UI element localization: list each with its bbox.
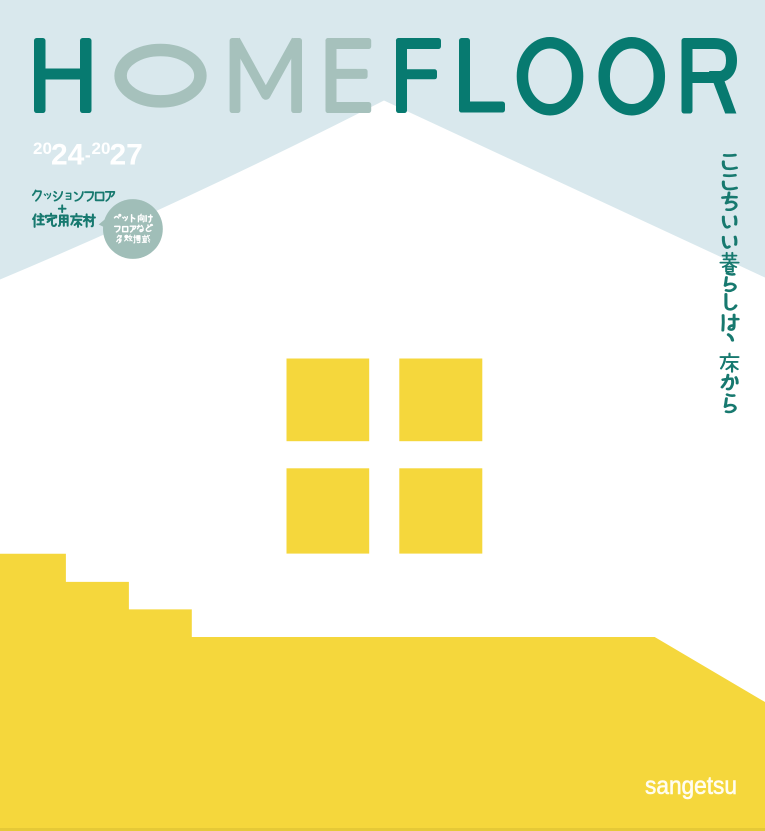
svg-text:24: 24 xyxy=(51,139,85,172)
svg-text:27: 27 xyxy=(110,139,143,172)
svg-text:20: 20 xyxy=(92,139,111,158)
svg-text:sangetsu: sangetsu xyxy=(645,772,737,800)
svg-text:20: 20 xyxy=(33,139,52,158)
